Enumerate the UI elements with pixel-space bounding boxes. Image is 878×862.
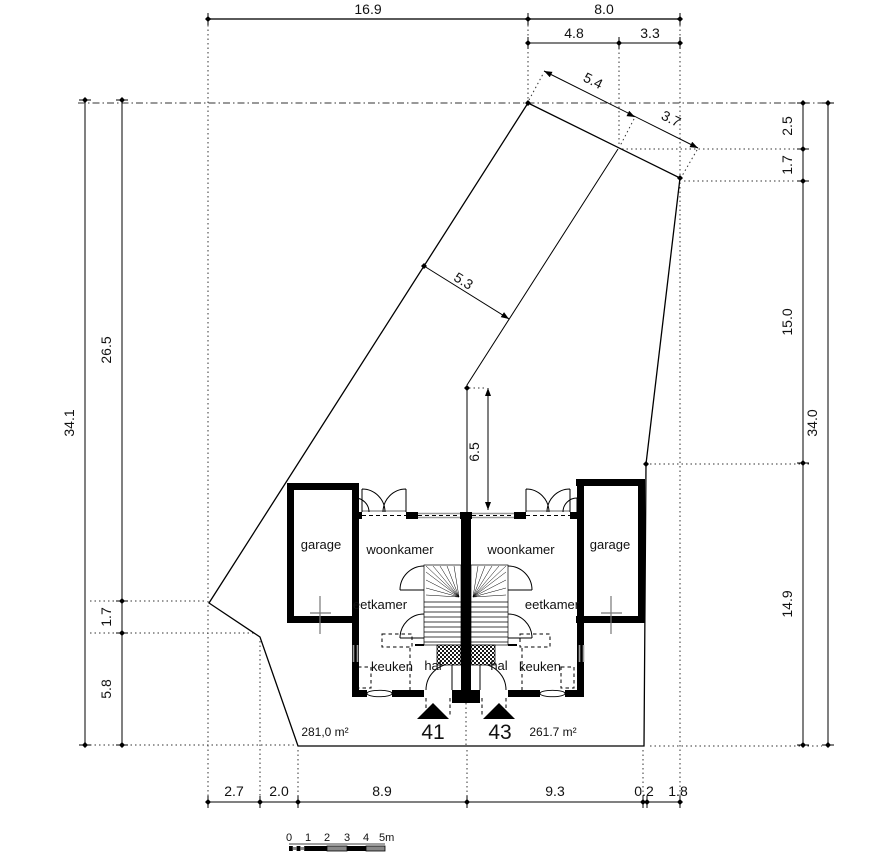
scale-tick-2: 2: [324, 832, 330, 844]
scale-bar: 0 1 2 3 4 5m: [286, 832, 394, 851]
floor-plan: [287, 479, 645, 719]
dim-right-14-9: 14.9: [779, 590, 795, 617]
label-garage-right: garage: [590, 537, 630, 552]
site-plan-drawing: 16.9 8.0 4.8 3.3 5.4 3.7 5.3 6.5 34.1 26…: [0, 0, 878, 862]
dim-right-1-7: 1.7: [779, 155, 795, 175]
garden-door-arcs: [355, 489, 577, 512]
dim-left-34-1: 34.1: [61, 409, 77, 436]
label-hall-right: hal: [490, 658, 507, 673]
house-number-41: 41: [421, 721, 444, 744]
dim-top-8-0: 8.0: [594, 1, 614, 17]
dimension-labels: 16.9 8.0 4.8 3.3 5.4 3.7 5.3 6.5 34.1 26…: [61, 1, 820, 799]
staircase-left: [424, 565, 461, 645]
dim-left-1-7: 1.7: [98, 607, 114, 627]
label-kitchen-left: keuken: [371, 659, 413, 674]
dim-left-26-5: 26.5: [98, 336, 114, 363]
label-living-right: woonkamer: [486, 542, 555, 557]
scale-unit-label: 5m: [379, 832, 394, 844]
house-number-43: 43: [488, 721, 511, 744]
scale-tick-3: 3: [344, 832, 350, 844]
label-area-43: 261.7 m²: [529, 725, 576, 739]
dim-diag-5-4: 5.4: [581, 69, 606, 92]
dim-6-5: 6.5: [466, 442, 482, 462]
staircase-right: [471, 565, 508, 645]
dim-bottom-0-2: 0.2: [634, 783, 654, 799]
entrance-marker-41: [417, 703, 449, 719]
label-area-41: 281,0 m²: [301, 725, 348, 739]
label-garage-left: garage: [301, 537, 341, 552]
dim-right-34-0: 34.0: [804, 409, 820, 436]
dimension-diamonds: [82, 16, 831, 805]
scale-tick-4: 4: [363, 832, 369, 844]
dim-bottom-9-3: 9.3: [545, 783, 565, 799]
front-window-right: [540, 690, 565, 696]
dimension-lines: [79, 13, 834, 808]
dim-left-5-8: 5.8: [98, 679, 114, 699]
dim-bottom-2-7: 2.7: [224, 783, 244, 799]
dim-bottom-1-8: 1.8: [668, 783, 688, 799]
dim-diag-5-3: 5.3: [451, 269, 476, 293]
dim-right-15-0: 15.0: [779, 308, 795, 335]
entrance-marker-43: [483, 703, 515, 719]
label-living-left: woonkamer: [365, 542, 434, 557]
dim-top-3-3: 3.3: [640, 25, 660, 41]
scale-bar-segments: [289, 846, 385, 851]
label-kitchen-right: keuken: [519, 659, 561, 674]
garage-left-walls: [287, 483, 355, 623]
dim-top-4-8: 4.8: [564, 25, 584, 41]
scale-tick-0: 0: [286, 832, 292, 844]
dim-right-2-5: 2.5: [779, 116, 795, 136]
dim-top-16-9: 16.9: [354, 1, 381, 17]
parcel-divider: [467, 149, 618, 512]
scale-tick-1: 1: [305, 832, 311, 844]
front-window-left: [367, 690, 392, 696]
dim-bottom-2-0: 2.0: [269, 783, 289, 799]
plan-svg: 16.9 8.0 4.8 3.3 5.4 3.7 5.3 6.5 34.1 26…: [0, 0, 878, 862]
label-hall-left: hal: [424, 658, 441, 673]
dim-bottom-8-9: 8.9: [372, 783, 392, 799]
label-dining-left: eetkamer: [353, 597, 408, 612]
dim-diag-3-7: 3.7: [659, 107, 684, 130]
extension-lines: [78, 25, 824, 797]
label-dining-right: eetkamer: [525, 597, 580, 612]
